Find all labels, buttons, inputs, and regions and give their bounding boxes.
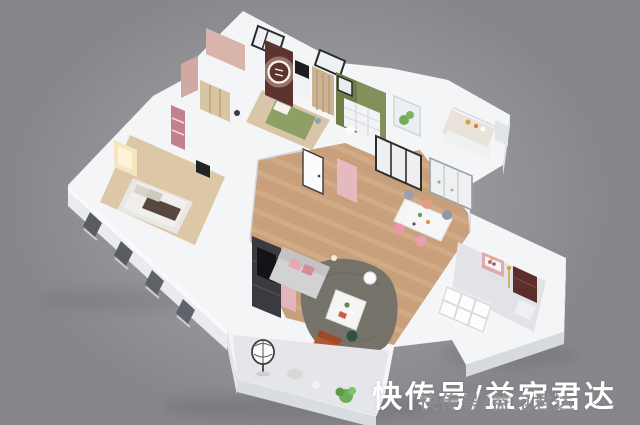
- vase: [315, 118, 321, 124]
- food-bowl: [474, 124, 478, 128]
- pouf: [287, 369, 303, 380]
- table-plant: [344, 302, 349, 307]
- rose-shelf: [171, 105, 185, 150]
- stool-gray: [442, 210, 452, 220]
- toilet: [345, 127, 355, 134]
- stool-pink: [394, 224, 405, 235]
- stool-pink: [416, 236, 427, 247]
- screenshot-canvas: 快传号/益宛君达 快传号/益宛君达: [0, 0, 640, 425]
- floor-lamp: [331, 255, 337, 261]
- side-table: [364, 272, 376, 284]
- floorplan-render: [0, 0, 640, 425]
- teal-pouf: [347, 331, 358, 342]
- stool: [312, 381, 320, 389]
- stool-gray: [404, 190, 414, 200]
- food-bowl: [465, 119, 470, 124]
- plate: [481, 127, 486, 132]
- stool-salmon: [422, 199, 432, 209]
